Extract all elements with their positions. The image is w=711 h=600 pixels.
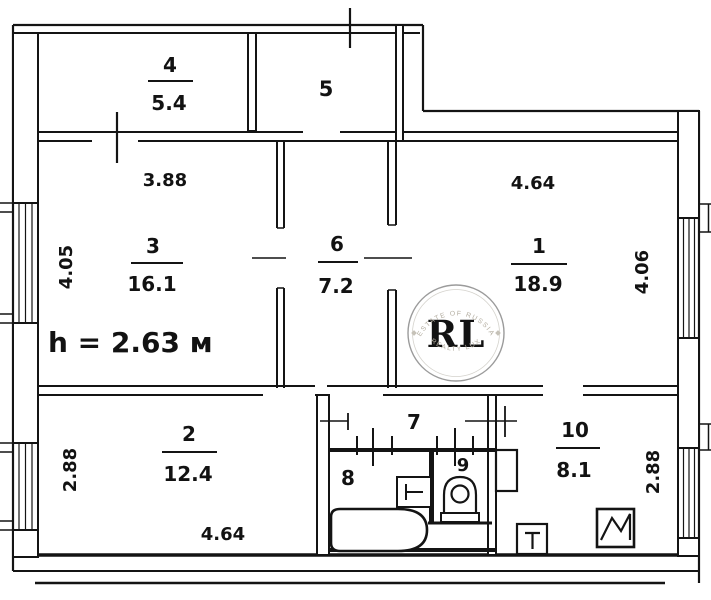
- room-6-area: 7.2: [318, 274, 353, 298]
- floor-plan-canvas: 4 5.4 5 3.88 3 16.1 4.05 h = 2.63 м 6 7.…: [0, 0, 711, 600]
- room-3-area: 16.1: [127, 272, 176, 296]
- dimension-tick-marks: [117, 8, 350, 163]
- room-6-label: 6 7.2: [318, 232, 358, 298]
- room-4-area: 5.4: [151, 91, 186, 115]
- room-labels: 4 5.4 5 3.88 3 16.1 4.05 h = 2.63 м 6 7.…: [48, 53, 664, 545]
- balcony-marks-right: [699, 204, 711, 450]
- ceiling-height-note: h = 2.63 м: [48, 326, 213, 359]
- right-wall: [678, 111, 711, 556]
- mid-wall: [38, 386, 678, 395]
- outer-walls: [13, 25, 699, 583]
- room-3-label: 3.88 3 16.1 4.05 h = 2.63 м: [48, 170, 213, 359]
- room-10-area: 8.1: [556, 458, 591, 482]
- vent-shaft: [496, 450, 517, 491]
- room-4-number: 4: [163, 53, 177, 77]
- window-room2: [19, 443, 32, 530]
- corridor-walls: [252, 141, 412, 388]
- room-2-label: 2 12.4 2.88 4.64: [60, 422, 245, 545]
- room-2-number: 2: [182, 422, 196, 446]
- interior-walls-top: [38, 25, 678, 141]
- room-7-number: 7: [407, 410, 421, 434]
- room-9-number: 9: [457, 455, 470, 476]
- room-6-number: 6: [330, 232, 344, 256]
- washer-icon: [517, 524, 547, 554]
- room-2-dim-left: 2.88: [60, 448, 81, 492]
- room-3-number: 3: [146, 234, 160, 258]
- room-2-area: 12.4: [163, 462, 212, 486]
- left-wall: [0, 33, 38, 557]
- room-10-number: 10: [561, 418, 589, 442]
- stove-icon: [597, 509, 634, 547]
- room-1-area: 18.9: [513, 272, 562, 296]
- toilet-icon: [441, 477, 479, 522]
- floor-plan: 4 5.4 5 3.88 3 16.1 4.05 h = 2.63 м 6 7.…: [0, 0, 711, 600]
- room-3-dim-top: 3.88: [143, 170, 187, 191]
- room-10-dim-right: 2.88: [643, 450, 664, 494]
- room-10-label: 10 8.1 2.88: [556, 418, 664, 494]
- room-5-number: 5: [319, 77, 334, 101]
- bathtub-icon: [331, 509, 427, 551]
- watermark: RL ESTATE OF RUSSIA REALTY LUX: [408, 285, 504, 381]
- window-extent-ticks-left: [0, 203, 13, 530]
- room-1-dim-top: 4.64: [511, 173, 555, 194]
- fixtures: [331, 477, 634, 554]
- wall-room5-right: [396, 25, 403, 141]
- window-room1: [684, 218, 695, 338]
- sink-icon: [397, 477, 431, 507]
- window-room3: [19, 203, 32, 323]
- room-8-number: 8: [341, 466, 355, 490]
- room-1-label: 4.64 1 18.9 4.06: [511, 173, 653, 296]
- room-2-dim-bottom: 4.64: [201, 524, 245, 545]
- room-1-dim-right: 4.06: [632, 250, 653, 294]
- wall-room4-room5: [248, 33, 256, 131]
- window-room10: [684, 448, 695, 538]
- room-4-label: 4 5.4: [148, 53, 193, 115]
- room-3-dim-left: 4.05: [56, 245, 77, 289]
- room-1-number: 1: [532, 234, 546, 258]
